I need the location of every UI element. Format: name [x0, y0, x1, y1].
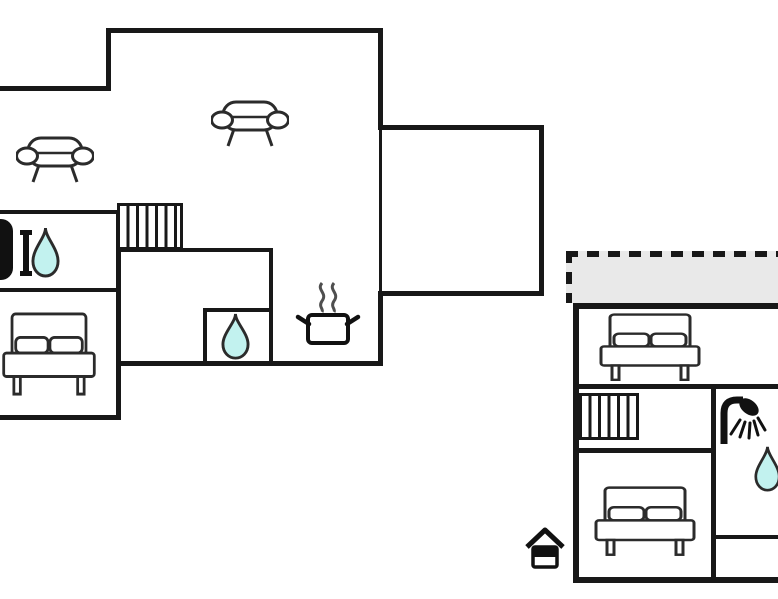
terrace-area — [566, 251, 778, 303]
double-bed-icon — [597, 313, 703, 383]
wall-segment — [573, 384, 778, 389]
floor-plan-image: { "palette": { "background": "#ffffff", … — [0, 0, 778, 599]
wall-segment — [573, 303, 778, 309]
wall-segment — [573, 303, 579, 583]
shower-icon — [718, 392, 768, 446]
terrace-dashed-border — [566, 251, 778, 257]
wall-segment — [573, 577, 778, 583]
wall-segment — [711, 535, 778, 539]
stairs-icon — [579, 393, 639, 440]
wall-segment — [711, 384, 716, 583]
upper-floor-plan — [0, 0, 778, 599]
house-icon — [524, 525, 566, 571]
water-drop-icon — [754, 445, 778, 492]
wall-segment — [573, 448, 715, 453]
terrace-dashed-border — [566, 251, 572, 303]
double-bed-icon — [592, 486, 698, 558]
